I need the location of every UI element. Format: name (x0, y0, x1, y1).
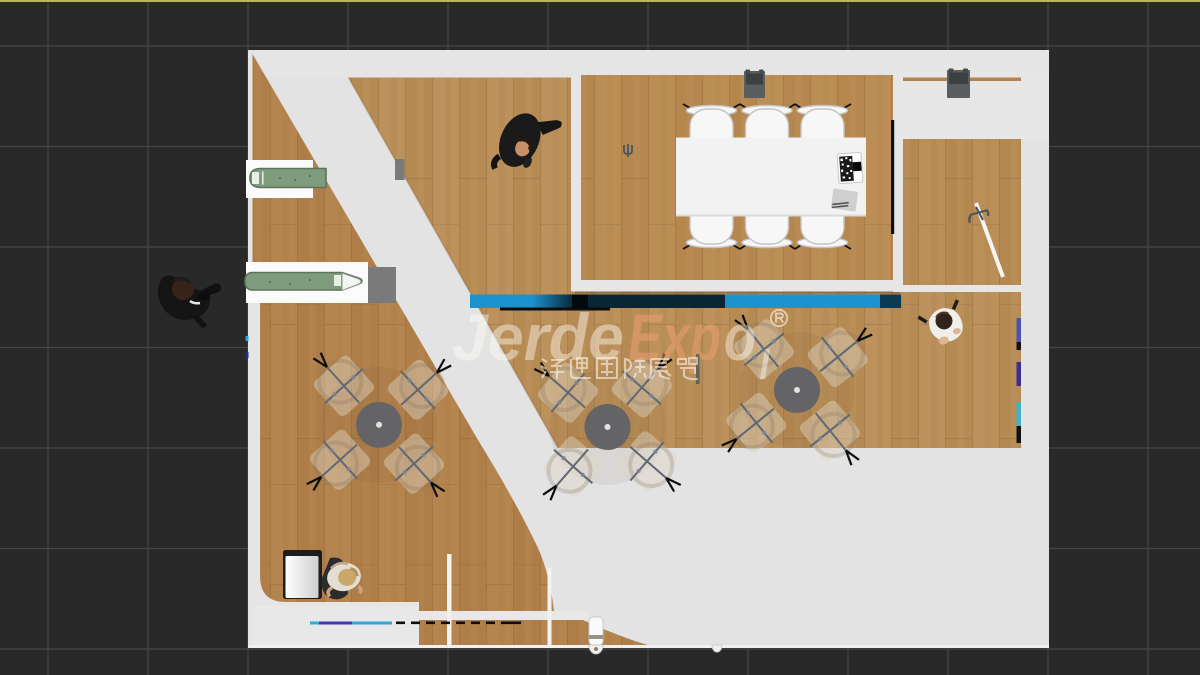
svg-text:o: o (724, 300, 756, 374)
svg-text:Exp: Exp (628, 300, 721, 374)
svg-text:Jerde: Jerde (452, 300, 624, 374)
